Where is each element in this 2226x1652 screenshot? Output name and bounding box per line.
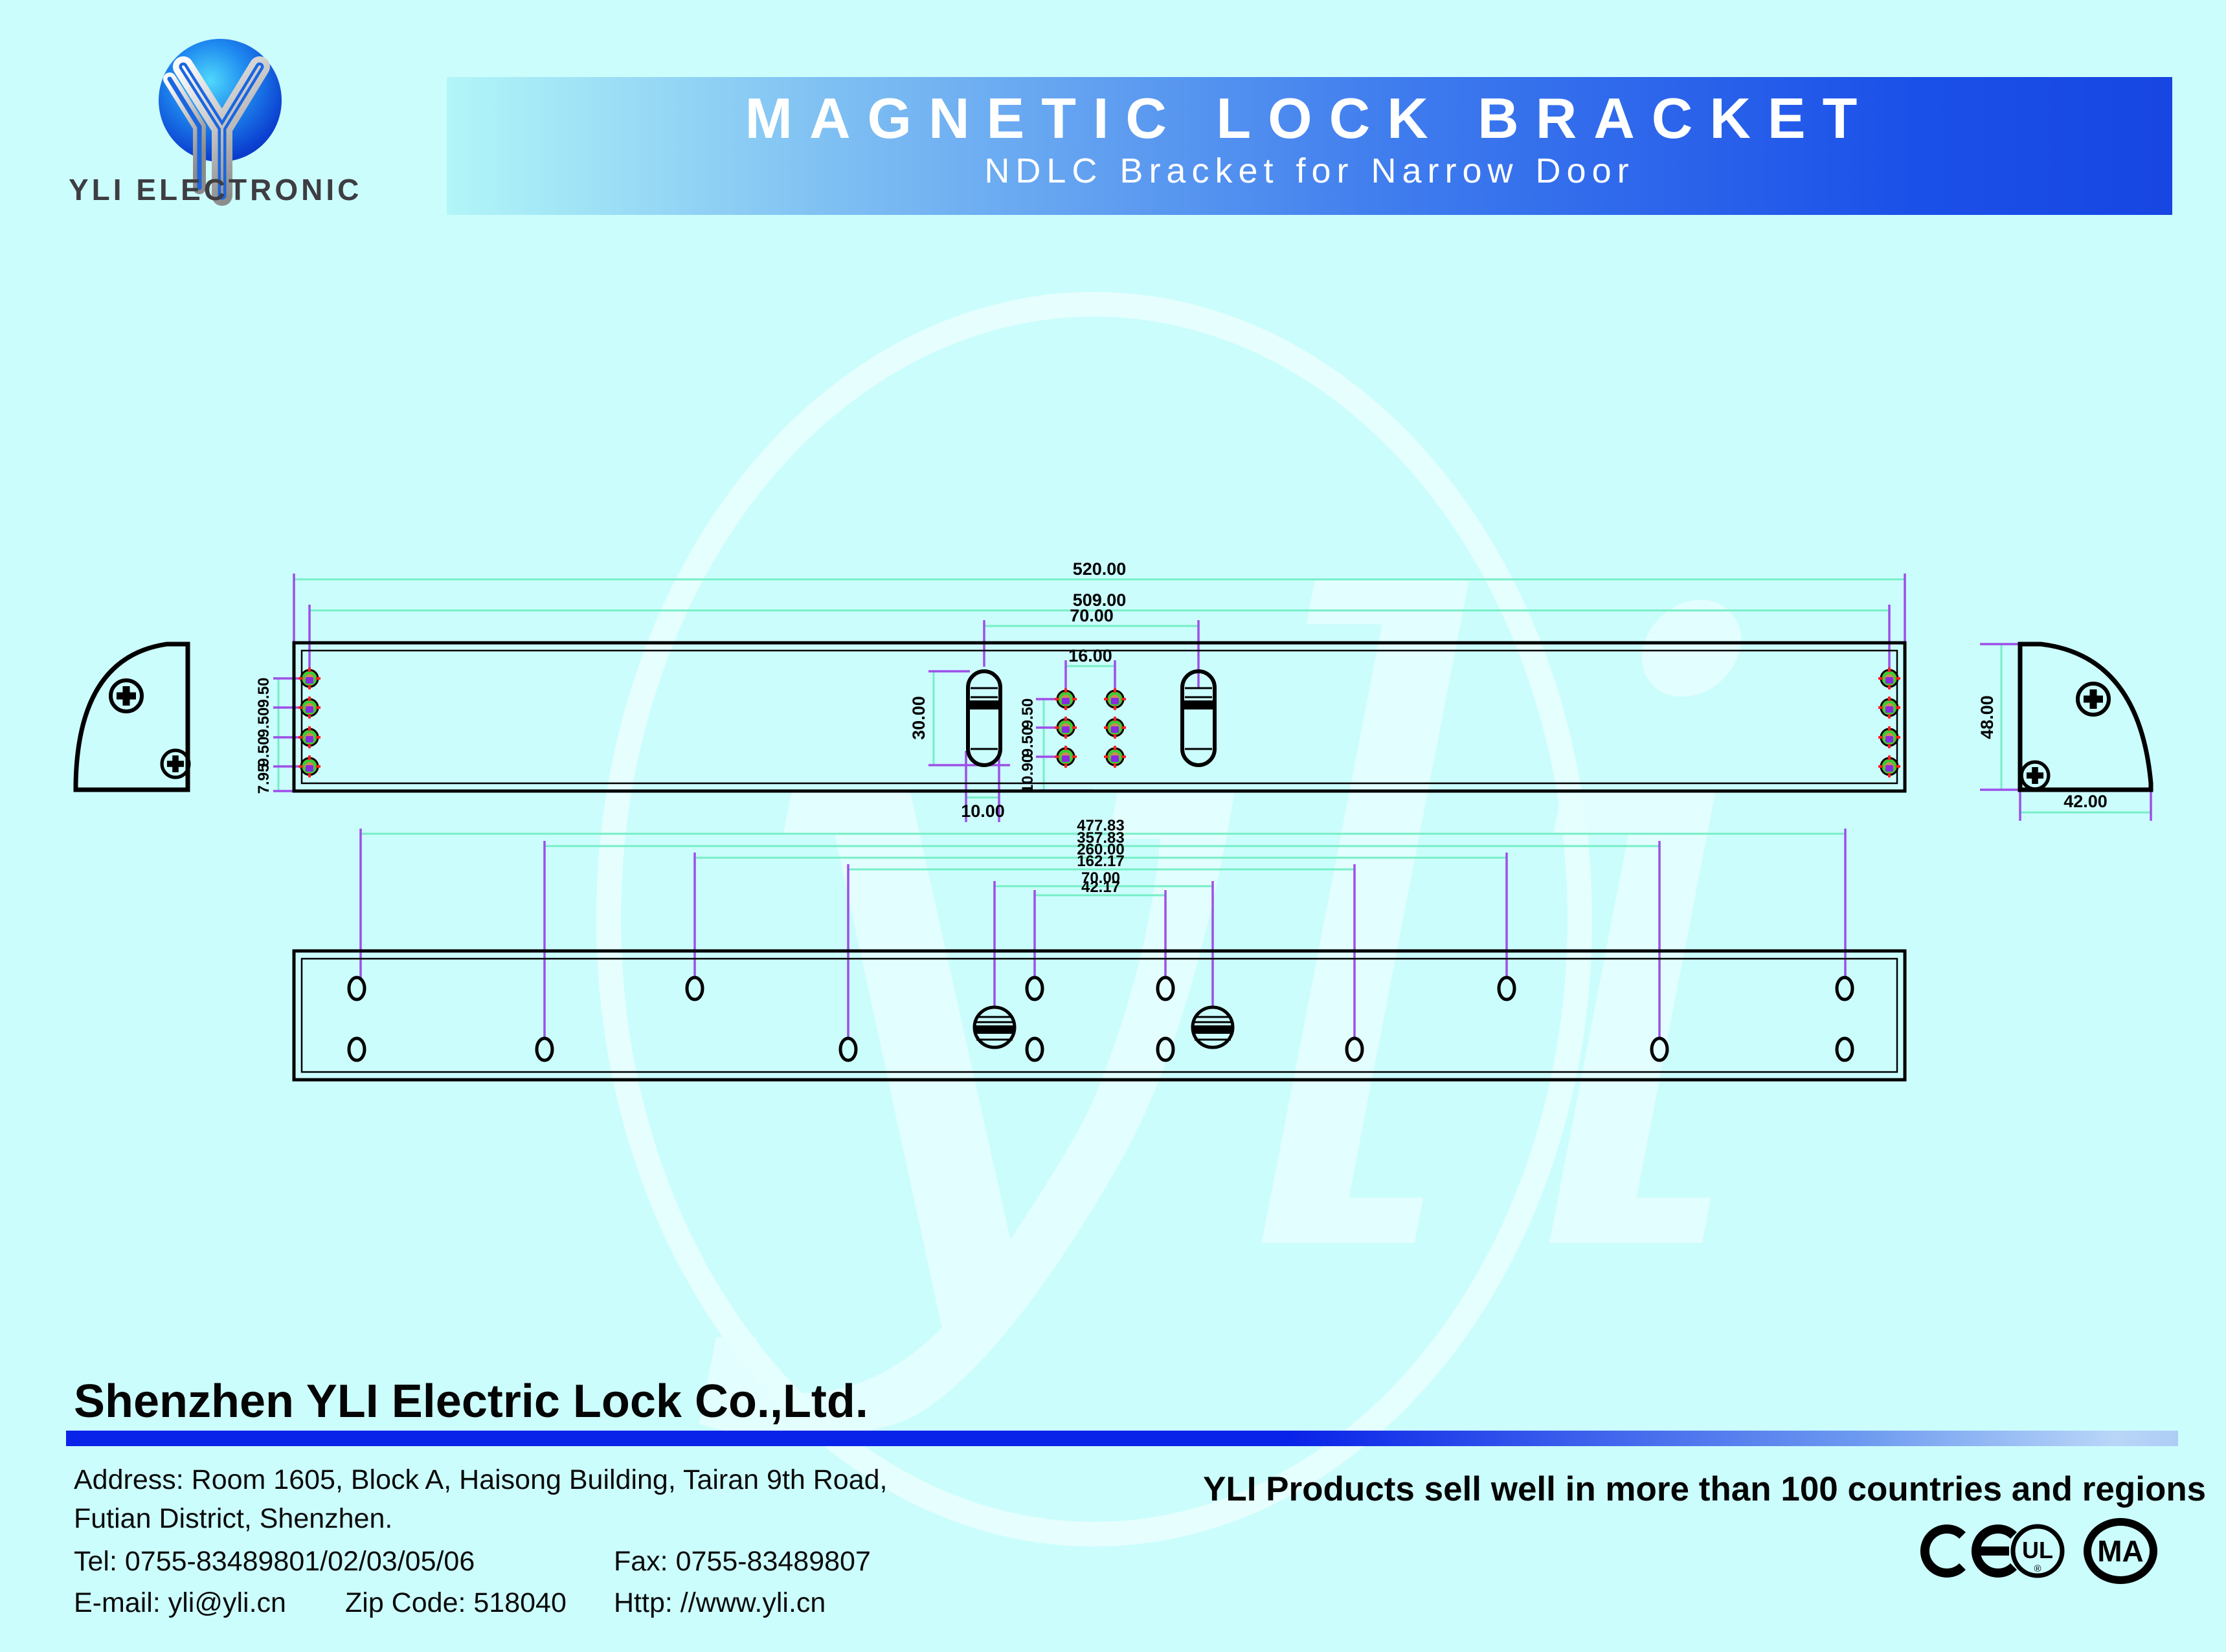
address-line-2: Futian District, Shenzhen. xyxy=(74,1503,392,1535)
ce-mark-icon xyxy=(1925,1529,2014,1573)
website-url: Http: //www.yli.cn xyxy=(614,1587,826,1619)
plate-hole xyxy=(349,977,365,999)
dim-center-hole-spacing: 16.00 xyxy=(1068,646,1112,665)
zip-code: Zip Code: 518040 xyxy=(345,1587,567,1619)
dim-center-hole-3: 10.90 xyxy=(1019,754,1037,793)
watermark-script: yli xyxy=(691,432,1784,1449)
yli-watermark: yli xyxy=(609,304,1784,1534)
logo-wordmark: YLI ELECTRONIC xyxy=(69,172,362,207)
product-subtitle: NDLC Bracket for Narrow Door xyxy=(984,151,1634,191)
plate-hole xyxy=(537,1038,552,1060)
email-address: E-mail: yli@yli.cn xyxy=(74,1587,286,1619)
left-cap-profile xyxy=(76,644,188,790)
dim-center-hole-2: 9.50 xyxy=(1019,727,1037,757)
dim-overall-width: 520.00 xyxy=(1073,559,1127,579)
dim-left-hole-2: 9.50 xyxy=(255,708,273,738)
address-line-1: Address: Room 1605, Block A, Haisong Bui… xyxy=(74,1464,888,1496)
ma-mark-icon: MA xyxy=(2087,1522,2153,1580)
dim-left-hole-1: 9.50 xyxy=(255,678,273,708)
right-end-cap-view: 48.00 42.00 xyxy=(1977,644,2151,811)
phillips-screw-icon xyxy=(2078,684,2109,715)
dim-cap-height: 48.00 xyxy=(1977,695,1997,739)
datasheet-page: yli xyxy=(0,0,2226,1652)
dim-bottom-6: 42.17 xyxy=(1081,878,1120,896)
phillips-screw-icon xyxy=(111,680,142,711)
fax-number: Fax: 0755-83489807 xyxy=(614,1546,871,1578)
dim-cap-width: 42.00 xyxy=(2063,792,2108,811)
plate-hole xyxy=(1837,1038,1852,1060)
plate-hole xyxy=(1837,977,1852,999)
phillips-screw-icon xyxy=(162,750,189,777)
ul-registered-symbol: ® xyxy=(2034,1563,2041,1574)
phillips-screw-icon xyxy=(2021,762,2049,789)
ul-mark-text: UL xyxy=(2022,1537,2053,1563)
left-end-cap-view xyxy=(76,644,189,790)
plate-hole xyxy=(349,1038,365,1060)
dim-left-hole-3: 9.50 xyxy=(255,737,273,767)
certification-marks: UL ® MA xyxy=(1925,1522,2153,1580)
right-cap-profile xyxy=(2020,644,2151,790)
product-title: MAGNETIC LOCK BRACKET xyxy=(745,89,1874,148)
dim-bottom-4: 162.17 xyxy=(1077,853,1124,870)
ul-mark-icon: UL ® xyxy=(2013,1526,2062,1576)
dim-left-hole-4: 7.95 xyxy=(255,764,273,794)
dim-slot-spacing: 70.00 xyxy=(1070,606,1114,625)
phone-number: Tel: 0755-83489801/02/03/05/06 xyxy=(74,1546,475,1578)
plate-hole xyxy=(687,977,703,999)
company-name: Shenzhen YLI Electric Lock Co.,Ltd. xyxy=(74,1375,868,1428)
dim-slot-length: 30.00 xyxy=(909,696,928,740)
title-banner: MAGNETIC LOCK BRACKET NDLC Bracket for N… xyxy=(447,77,2172,215)
dim-center-hole-1: 9.50 xyxy=(1019,698,1037,729)
marketing-tagline: YLI Products sell well in more than 100 … xyxy=(1203,1469,2206,1509)
footer-divider-bar xyxy=(66,1431,2178,1446)
ma-mark-text: MA xyxy=(2097,1534,2144,1568)
dim-slot-width: 10.00 xyxy=(961,801,1005,821)
